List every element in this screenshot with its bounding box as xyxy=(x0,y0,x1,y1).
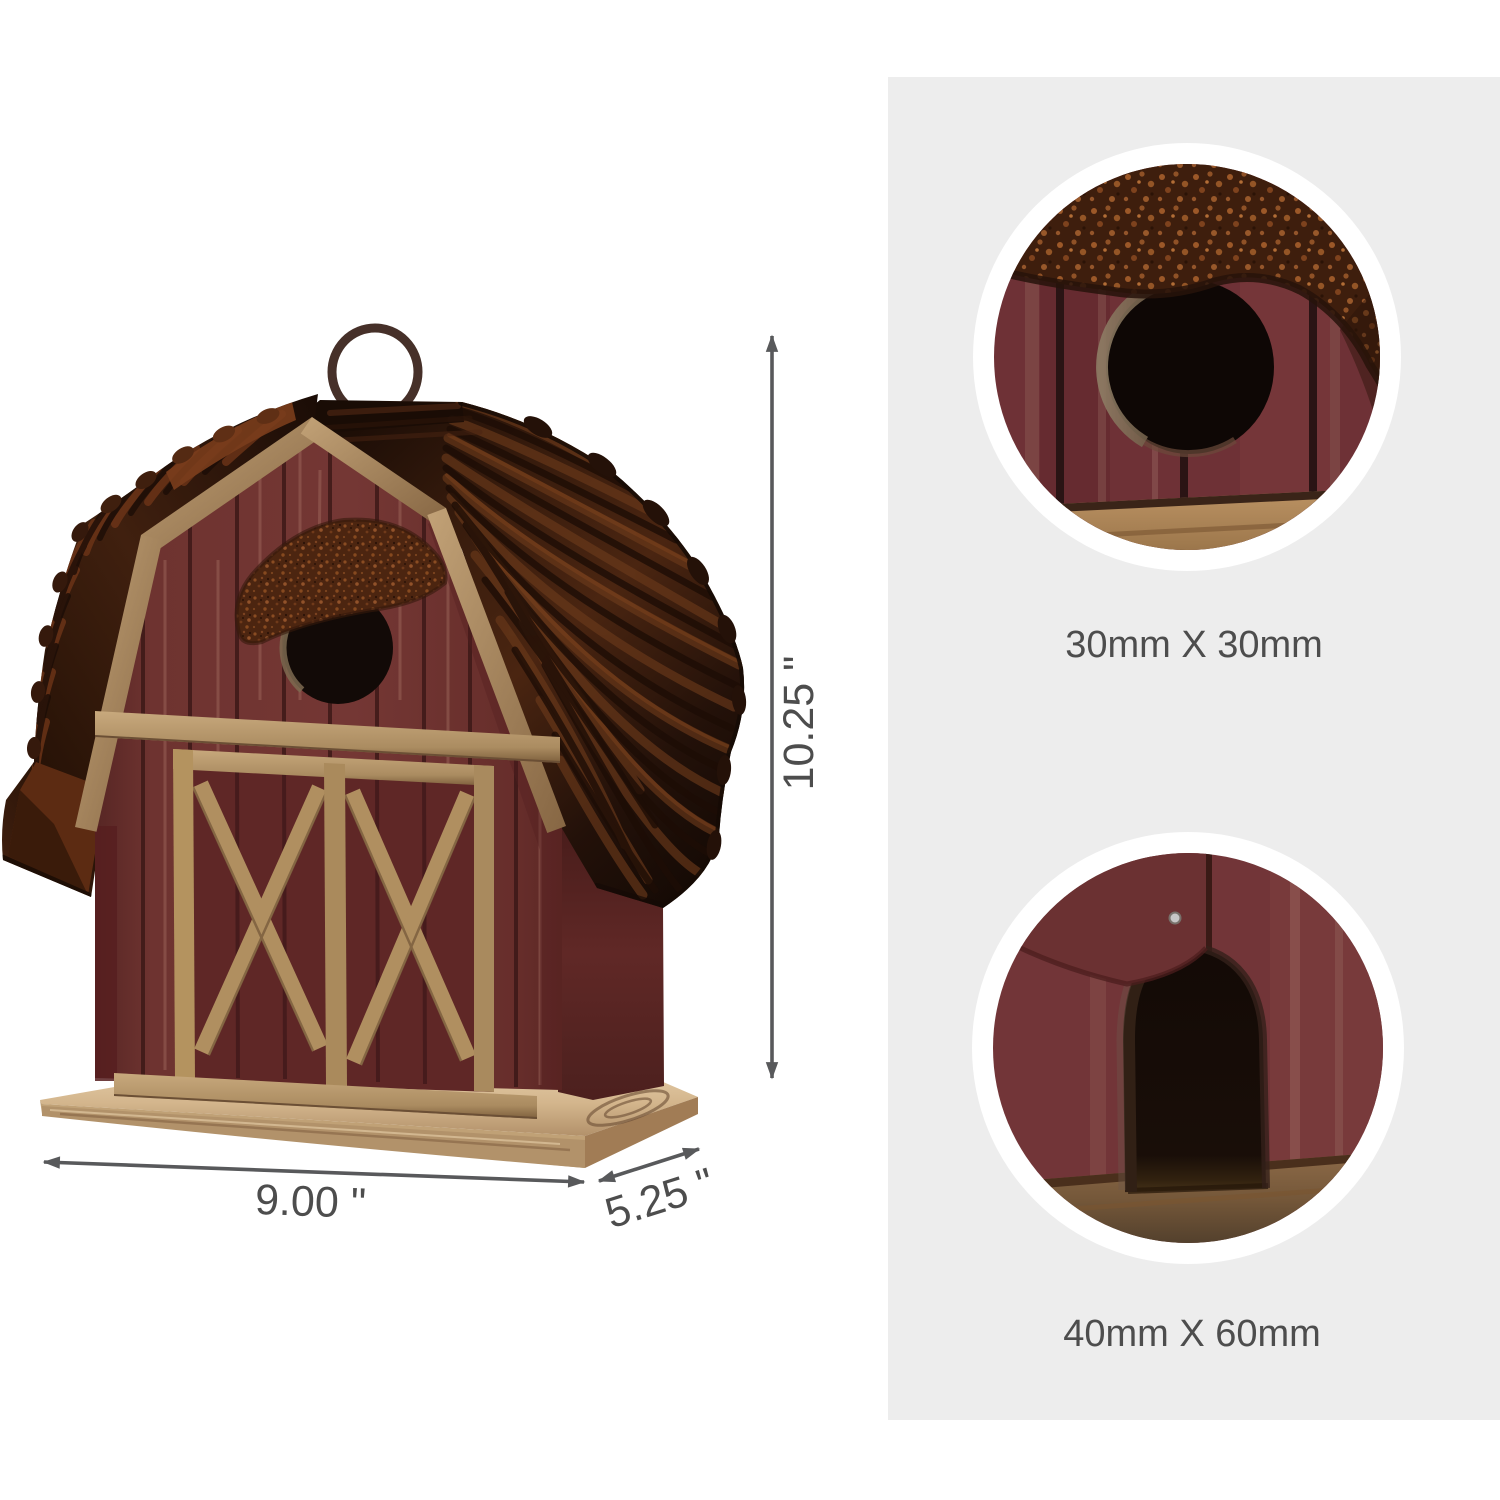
svg-text:30mm X 30mm: 30mm X 30mm xyxy=(1065,624,1323,666)
svg-text:10.25 ": 10.25 " xyxy=(775,656,823,791)
svg-text:40mm X 60mm: 40mm X 60mm xyxy=(1063,1313,1321,1355)
svg-text:9.00 ": 9.00 " xyxy=(254,1176,367,1228)
